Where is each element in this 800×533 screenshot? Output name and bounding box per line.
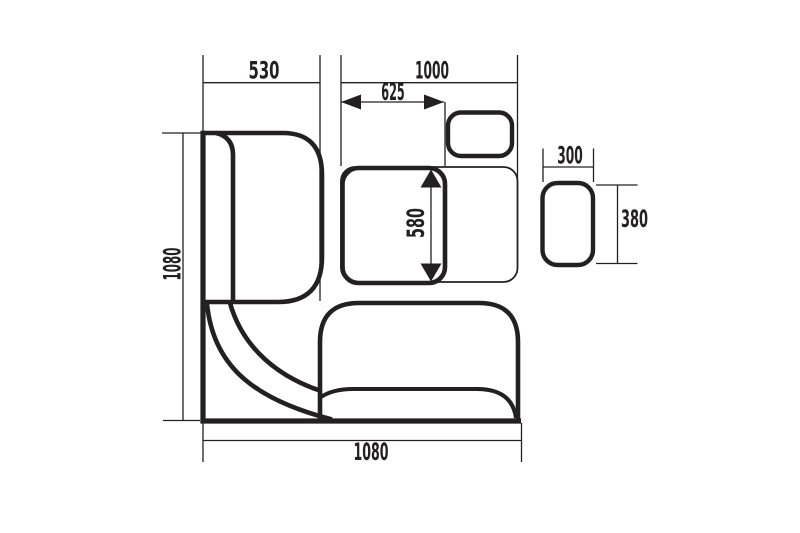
dim-625-arrow-right — [424, 95, 444, 110]
stool-outline — [543, 183, 594, 265]
dim-300-label: 300 — [557, 142, 583, 170]
dim-530-label: 530 — [249, 57, 280, 85]
dim-625-label: 625 — [381, 78, 405, 106]
left-bench-seat-divider — [216, 133, 233, 304]
small-cushion-outline — [448, 113, 512, 157]
corner-bench-plan-drawing: 530 1000 625 580 300 380 1080 1080 — [0, 0, 800, 533]
bottom-bench-seat-edge — [321, 389, 516, 418]
left-bench-outline — [202, 133, 322, 302]
dim-1000-label: 1000 — [415, 57, 449, 85]
dim-580-label: 580 — [402, 208, 430, 238]
furniture-plan-screenshot: 530 1000 625 580 300 380 1080 1080 — [0, 0, 800, 533]
bottom-bench-outline — [320, 303, 518, 421]
dim-1080-bottom-label: 1080 — [354, 438, 389, 466]
dim-1080-left-label: 1080 — [159, 248, 187, 281]
dim-625-arrow-left — [341, 95, 361, 110]
dim-380-label: 380 — [621, 205, 648, 233]
